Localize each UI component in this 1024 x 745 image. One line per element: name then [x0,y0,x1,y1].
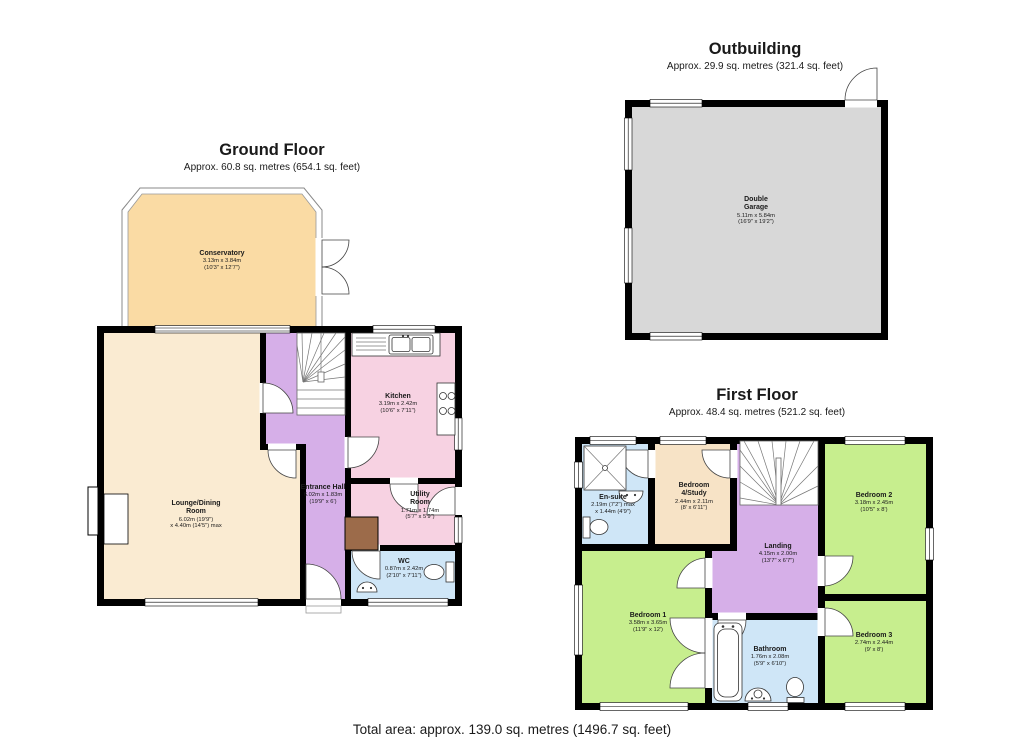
utility-side-window [455,517,463,543]
garage-window-bottom [650,333,702,341]
bathroom-window [748,703,788,711]
ground-floor-title: Ground Floor [219,141,324,160]
room-label-bed3: Bedroom 3 2.74m x 2.44m (9' x 8') [855,632,893,654]
ensuite-shower [584,446,626,490]
garage-window-left-2 [625,228,633,283]
room-name: Bathroom [753,646,786,654]
floorplan-page: Ground Floor Approx. 60.8 sq. metres (65… [0,0,1024,745]
wc-window [368,599,448,607]
room-label-lounge: Lounge/Dining Room 6.02m (19'9") x 4.40m… [167,500,225,530]
first-floor-subtitle: Approx. 48.4 sq. metres (521.2 sq. feet) [669,407,845,418]
ensuite-side-window [575,462,583,488]
garage-door-opening [845,100,877,108]
room-label-bed1: Bedroom 1 3.58m x 3.65m (11'9" x 12') [629,612,667,634]
kitchen-side-window [455,418,463,450]
room-name: Double Garage [735,196,777,213]
total-area-text: Total area: approx. 139.0 sq. metres (14… [353,722,671,737]
staircase-first [740,441,818,505]
room-label-wc: WC 0.87m x 2.42m (2'10" x 7'11") [385,558,423,580]
first-floor-title: First Floor [716,386,798,405]
room-name: En-suite [599,494,627,502]
room-label-garage: Double Garage 5.11m x 5.84m (16'9" x 19'… [735,196,777,226]
conservatory-opening [155,326,290,334]
room-name: Utility Room [403,491,438,508]
room-name: Bedroom 4/Study [673,482,715,499]
garage-door [845,68,877,100]
room-name: Lounge/Dining Room [167,500,225,517]
kitchen-window [373,326,435,334]
outbuilding-title: Outbuilding [709,40,802,59]
room-lounge [104,333,260,599]
room-label-entrance-hall: Entrance Hall 6.02m x 1.83m (19'9" x 6') [301,484,346,506]
bed1-side-window [575,585,583,655]
room-label-ensuite: En-suite 2.19m (7'2") max x 1.44m (4'9") [591,494,635,516]
room-name: Bedroom 1 [630,612,667,620]
garage-window-top [650,100,702,108]
outbuilding-subtitle: Approx. 29.9 sq. metres (321.4 sq. feet) [667,61,843,72]
staircase-ground [297,333,345,415]
bed4-window [660,437,706,445]
first-floor-plan [575,437,934,711]
bed2-window [845,437,905,445]
kitchen-sink [352,333,440,356]
ground-floor-subtitle: Approx. 60.8 sq. metres (654.1 sq. feet) [184,162,360,173]
bathtub [714,623,742,701]
front-door-step [306,606,341,613]
bed2-side-window [926,528,934,560]
room-label-landing: Landing 4.15m x 2.00m (13'7" x 6'7") [759,543,797,565]
garage-window-left-1 [625,118,633,170]
bed1-window [600,703,688,711]
lounge-window [145,599,258,607]
room-label-bed2: Bedroom 2 3.18m x 2.45m (10'5" x 8') [855,492,893,514]
room-name: Kitchen [385,393,411,401]
ensuite-top-window [590,437,636,445]
room-name: Bedroom 2 [856,492,893,500]
room-label-bed4: Bedroom 4/Study 2.44m x 2.11m (8' x 6'11… [673,482,715,512]
room-label-bathroom: Bathroom 1.76m x 2.08m (5'9" x 6'10") [751,646,789,668]
room-label-kitchen: Kitchen 3.19m x 2.42m (10'6" x 7'11") [379,393,417,415]
room-name: Bedroom 3 [856,632,893,640]
room-name: WC [398,558,410,566]
conservatory-french-doors [322,240,349,294]
room-label-utility: Utility Room 1.71m x 1.74m (5'7" x 5'9") [401,491,439,521]
bed3-window [845,703,905,711]
room-name: Conservatory [199,250,244,258]
kitchen-hob [437,383,455,435]
hall-cupboard [345,517,378,550]
room-name: Landing [764,543,791,551]
room-label-conservatory: Conservatory 3.13m x 3.84m (10'3" x 12'7… [199,250,244,272]
fireplace [88,487,128,544]
room-name: Entrance Hall [301,484,346,492]
bathroom-toilet [787,678,805,703]
